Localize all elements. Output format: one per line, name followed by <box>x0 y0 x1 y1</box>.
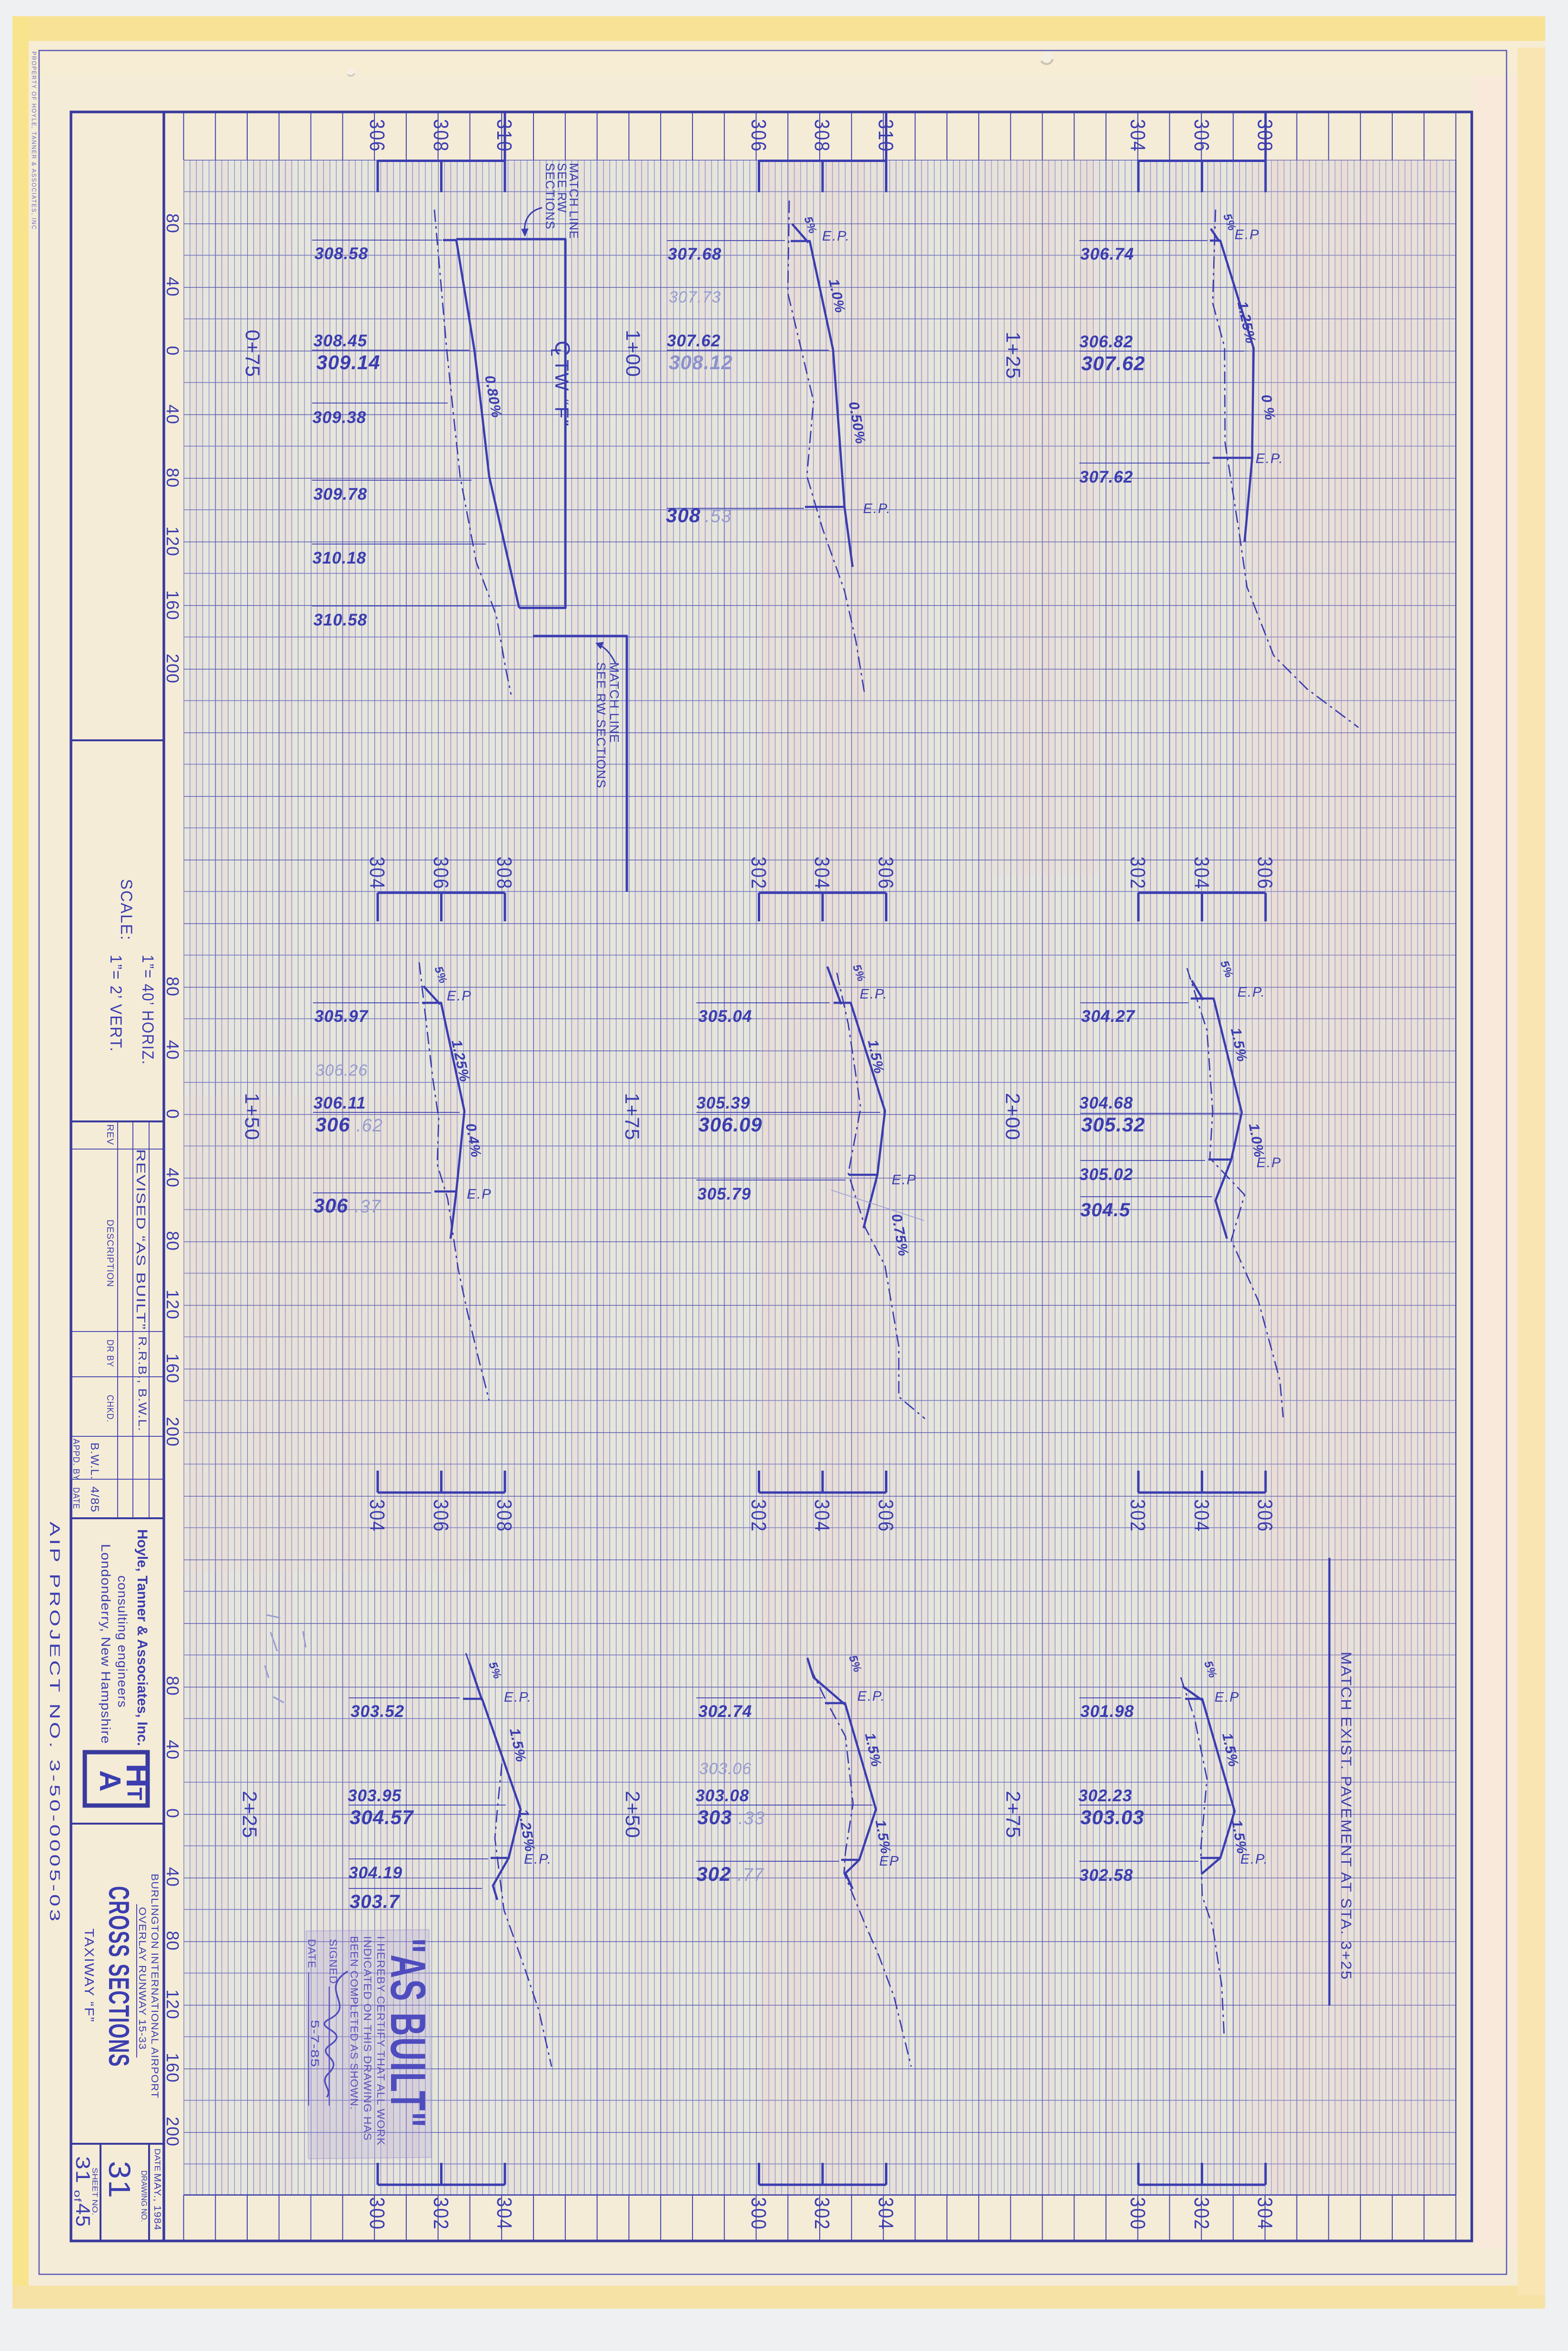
svg-text:303.08: 303.08 <box>695 1786 749 1805</box>
svg-text:E.P.: E.P. <box>524 1852 552 1867</box>
svg-text:REV: REV <box>105 1124 115 1145</box>
svg-text:306: 306 <box>1253 857 1277 890</box>
svg-text:DATE: DATE <box>71 1487 81 1509</box>
svg-text:SEE RW SECTIONS: SEE RW SECTIONS <box>594 662 608 788</box>
svg-text:304: 304 <box>365 1499 389 1533</box>
svg-text:80: 80 <box>163 213 182 233</box>
svg-text:304: 304 <box>365 857 389 890</box>
svg-text:306: 306 <box>315 1113 350 1136</box>
svg-text:E.P: E.P <box>1235 227 1260 242</box>
svg-text:305.97: 305.97 <box>314 1007 369 1026</box>
svg-text:"AS BUILT": "AS BUILT" <box>380 1938 435 2129</box>
svg-text:0: 0 <box>163 346 182 356</box>
svg-text:0: 0 <box>163 1808 182 1818</box>
svg-text:305.39: 305.39 <box>696 1094 750 1112</box>
svg-text:31: 31 <box>102 2161 137 2199</box>
svg-text:45: 45 <box>72 2203 94 2227</box>
svg-text:302.74: 302.74 <box>698 1702 752 1721</box>
svg-text:PROPERTY OF HOYLE, TANNER & AS: PROPERTY OF HOYLE, TANNER & ASSOCIATES, … <box>30 51 38 230</box>
svg-text:302.23: 302.23 <box>1078 1786 1132 1805</box>
svg-text:1+75: 1+75 <box>621 1093 643 1140</box>
svg-text:310.58: 310.58 <box>313 611 367 629</box>
svg-text:308.45: 308.45 <box>313 332 367 350</box>
svg-text:306: 306 <box>1190 119 1213 152</box>
svg-text:304: 304 <box>493 2197 516 2230</box>
svg-text:300: 300 <box>1126 2197 1149 2230</box>
svg-text:5-7-85: 5-7-85 <box>308 2020 321 2068</box>
svg-text:R.R.B., B.W.L.: R.R.B., B.W.L. <box>136 1336 149 1432</box>
svg-text:40: 40 <box>163 404 182 424</box>
svg-text:304.27: 304.27 <box>1081 1007 1136 1026</box>
svg-text:307.73: 307.73 <box>669 288 721 306</box>
svg-text:E.P.: E.P. <box>860 987 888 1002</box>
svg-text:CHKD.: CHKD. <box>105 1395 115 1423</box>
svg-text:304: 304 <box>1190 857 1213 890</box>
svg-text:303.03: 303.03 <box>1080 1806 1144 1828</box>
svg-text:307.68: 307.68 <box>668 245 722 263</box>
svg-text:306.82: 306.82 <box>1079 333 1133 351</box>
svg-text:303.06: 303.06 <box>699 1760 752 1778</box>
svg-text:305.04: 305.04 <box>698 1007 752 1026</box>
svg-text:2+75: 2+75 <box>1002 1791 1025 1838</box>
svg-text:306.11: 306.11 <box>313 1094 366 1112</box>
svg-text:303: 303 <box>697 1806 732 1828</box>
svg-text:310: 310 <box>874 119 897 152</box>
svg-text:307.62: 307.62 <box>1079 468 1133 486</box>
svg-text:306: 306 <box>429 1499 452 1533</box>
svg-text:E.P.: E.P. <box>857 1689 885 1704</box>
svg-text:EP: EP <box>879 1854 900 1869</box>
svg-text:.77: .77 <box>737 1865 764 1885</box>
svg-text:80: 80 <box>163 468 182 488</box>
svg-text:CROSS SECTIONS: CROSS SECTIONS <box>103 1886 135 2067</box>
svg-text:309.14: 309.14 <box>316 351 380 373</box>
svg-text:160: 160 <box>163 1353 182 1383</box>
svg-text:80: 80 <box>163 1231 182 1251</box>
svg-text:308: 308 <box>666 504 701 526</box>
svg-text:306: 306 <box>429 857 452 890</box>
svg-text:SCALE:: SCALE: <box>117 879 135 941</box>
svg-text:304.19: 304.19 <box>349 1864 402 1882</box>
svg-text:Londonderry, New Hampshire: Londonderry, New Hampshire <box>99 1544 113 1744</box>
svg-text:306: 306 <box>874 857 897 890</box>
svg-text:200: 200 <box>163 2117 182 2147</box>
svg-text:E.P.: E.P. <box>1240 1852 1268 1867</box>
svg-text:L: L <box>548 348 563 356</box>
svg-text:DESCRIPTION: DESCRIPTION <box>105 1220 115 1287</box>
svg-text:E.P.: E.P. <box>1256 451 1284 466</box>
svg-text:306: 306 <box>1253 1499 1277 1533</box>
svg-text:31: 31 <box>72 2156 94 2184</box>
svg-text:1+25: 1+25 <box>1002 332 1025 379</box>
svg-text:DR BY: DR BY <box>105 1340 115 1367</box>
svg-text:120: 120 <box>163 1290 182 1320</box>
svg-text:DATE: DATE <box>306 1939 318 1968</box>
svg-text:307.62: 307.62 <box>667 332 721 350</box>
svg-text:40: 40 <box>163 1740 182 1760</box>
svg-text:E.P.: E.P. <box>504 1690 532 1705</box>
svg-text:309.78: 309.78 <box>313 485 367 504</box>
svg-text:302: 302 <box>747 857 770 890</box>
svg-text:consulting engineers: consulting engineers <box>115 1575 130 1708</box>
svg-text:E.P: E.P <box>1256 1155 1282 1170</box>
svg-text:305.32: 305.32 <box>1081 1113 1145 1136</box>
svg-text:308: 308 <box>493 1499 516 1533</box>
svg-text:4/85: 4/85 <box>88 1486 101 1513</box>
svg-text:E.P.: E.P. <box>1237 985 1266 1000</box>
svg-text:306: 306 <box>874 1499 897 1533</box>
svg-text:306.09: 306.09 <box>698 1113 762 1136</box>
svg-text:80: 80 <box>163 977 182 997</box>
svg-text:303.7: 303.7 <box>350 1891 400 1912</box>
svg-text:OVERLAY RUNWAY 15-33: OVERLAY RUNWAY 15-33 <box>137 1907 148 2050</box>
svg-text:0: 0 <box>163 1109 182 1119</box>
svg-text:40: 40 <box>163 1867 182 1887</box>
svg-text:300: 300 <box>747 2197 770 2230</box>
svg-text:308: 308 <box>493 857 516 890</box>
svg-text:309.38: 309.38 <box>312 408 366 427</box>
svg-text:DATE: DATE <box>153 2149 162 2171</box>
svg-text:80: 80 <box>163 1931 182 1951</box>
svg-text:308.12: 308.12 <box>669 351 733 373</box>
svg-text:310.18: 310.18 <box>312 549 366 567</box>
svg-text:302: 302 <box>747 1499 770 1533</box>
svg-text:1+50: 1+50 <box>241 1093 263 1140</box>
svg-text:306.74: 306.74 <box>1080 245 1134 263</box>
svg-text:300: 300 <box>365 2197 389 2230</box>
svg-text:304: 304 <box>810 1499 834 1533</box>
svg-text:306: 306 <box>747 119 770 152</box>
svg-text:302: 302 <box>696 1863 731 1885</box>
svg-text:302.58: 302.58 <box>1079 1866 1133 1885</box>
svg-text:160: 160 <box>163 590 182 620</box>
svg-text:310: 310 <box>493 119 516 152</box>
svg-text:304.57: 304.57 <box>350 1806 414 1828</box>
svg-text:APPD. BY: APPD. BY <box>71 1439 81 1481</box>
svg-text:308: 308 <box>429 119 452 152</box>
svg-text:303.52: 303.52 <box>351 1702 404 1721</box>
svg-text:307.62: 307.62 <box>1081 352 1145 374</box>
svg-text:2+00: 2+00 <box>1002 1093 1024 1140</box>
svg-text:1”= 40’ HORIZ.: 1”= 40’ HORIZ. <box>139 955 157 1065</box>
svg-text:MAY., 1984: MAY., 1984 <box>152 2173 162 2230</box>
svg-text:DRAWING NO.: DRAWING NO. <box>140 2170 149 2222</box>
svg-text:120: 120 <box>163 1989 182 2019</box>
svg-text:SECTIONS: SECTIONS <box>543 163 557 230</box>
svg-text:E.P: E.P <box>1215 1690 1240 1705</box>
svg-text:302: 302 <box>429 2197 452 2230</box>
svg-text:303.95: 303.95 <box>348 1786 402 1805</box>
svg-text:304.68: 304.68 <box>1079 1094 1133 1112</box>
svg-text:E.P.: E.P. <box>822 229 850 244</box>
svg-text:160: 160 <box>163 2053 182 2083</box>
svg-text:BURLINGTON INTERNATIONAL AIRPO: BURLINGTON INTERNATIONAL AIRPORT <box>149 1874 160 2099</box>
svg-text:40: 40 <box>163 277 182 297</box>
svg-text:40: 40 <box>163 1168 182 1188</box>
svg-text:302: 302 <box>810 2197 834 2230</box>
svg-text:BEEN COMPLETED AS SHOWN.: BEEN COMPLETED AS SHOWN. <box>348 1936 360 2110</box>
svg-text:.62: .62 <box>356 1116 383 1136</box>
svg-text:INDICATED ON THIS DRAWING HAS: INDICATED ON THIS DRAWING HAS <box>362 1936 373 2141</box>
svg-text:304: 304 <box>874 2197 897 2230</box>
svg-text:302: 302 <box>1190 2197 1213 2230</box>
svg-text:304: 304 <box>1253 2197 1277 2230</box>
svg-text:E.P.: E.P. <box>863 501 891 516</box>
svg-text:308.58: 308.58 <box>314 244 368 263</box>
svg-text:AIP PROJECT NO. 3-50-0005-03: AIP PROJECT NO. 3-50-0005-03 <box>47 1522 62 1924</box>
svg-text:40: 40 <box>163 1040 182 1060</box>
svg-text:305.02: 305.02 <box>1079 1165 1133 1184</box>
svg-text:120: 120 <box>163 526 182 556</box>
svg-text:304: 304 <box>810 857 834 890</box>
svg-text:.33: .33 <box>738 1808 765 1828</box>
svg-text:306: 306 <box>365 119 389 152</box>
svg-text:308: 308 <box>810 119 834 152</box>
svg-text:1”= 2’ VERT.: 1”= 2’ VERT. <box>107 955 125 1052</box>
svg-text:2+50: 2+50 <box>622 1791 644 1838</box>
svg-text:E.P: E.P <box>892 1172 917 1188</box>
svg-text:306: 306 <box>313 1194 348 1217</box>
svg-text:308: 308 <box>1253 119 1277 152</box>
svg-text:80: 80 <box>163 1676 182 1696</box>
svg-text:MATCH LINE: MATCH LINE <box>607 662 622 743</box>
svg-text:TW “F”: TW “F” <box>551 360 572 427</box>
svg-text:TAXIWAY “F”: TAXIWAY “F” <box>82 1928 97 2023</box>
svg-text:304.5: 304.5 <box>1080 1200 1130 1221</box>
svg-text:E.P: E.P <box>467 1187 492 1202</box>
svg-text:2+25: 2+25 <box>239 1791 261 1838</box>
svg-text:B.W.L.: B.W.L. <box>88 1443 101 1480</box>
svg-text:.37: .37 <box>354 1197 382 1217</box>
svg-text:0+75: 0+75 <box>241 330 264 377</box>
svg-text:1+00: 1+00 <box>622 330 644 377</box>
svg-text:REVISED “AS BUILT”: REVISED “AS BUILT” <box>134 1149 148 1330</box>
svg-text:304: 304 <box>1190 1499 1213 1533</box>
svg-text:304: 304 <box>1126 119 1149 152</box>
svg-text:MATCH EXIST. PAVEMENT AT STA.: MATCH EXIST. PAVEMENT AT STA. 3+25 <box>1338 1652 1355 1980</box>
svg-text:305.79: 305.79 <box>697 1185 751 1203</box>
svg-text:200: 200 <box>163 1417 182 1447</box>
svg-text:302: 302 <box>1126 1499 1149 1533</box>
svg-text:of: of <box>72 2190 82 2202</box>
svg-text:Hoyle, Tanner & Associates, In: Hoyle, Tanner & Associates, Inc. <box>134 1529 150 1746</box>
svg-text:SIGNED: SIGNED <box>327 1939 339 1984</box>
svg-text:200: 200 <box>163 654 182 684</box>
svg-text:301.98: 301.98 <box>1080 1702 1134 1721</box>
svg-text:302: 302 <box>1126 857 1149 890</box>
svg-text:E.P: E.P <box>447 989 472 1004</box>
svg-text:I HEREBY CERTIFY THAT ALL WORK: I HEREBY CERTIFY THAT ALL WORK <box>375 1936 387 2146</box>
svg-text:.53: .53 <box>705 506 732 526</box>
svg-text:306.26: 306.26 <box>315 1061 368 1080</box>
svg-text:A: A <box>93 1770 126 1792</box>
